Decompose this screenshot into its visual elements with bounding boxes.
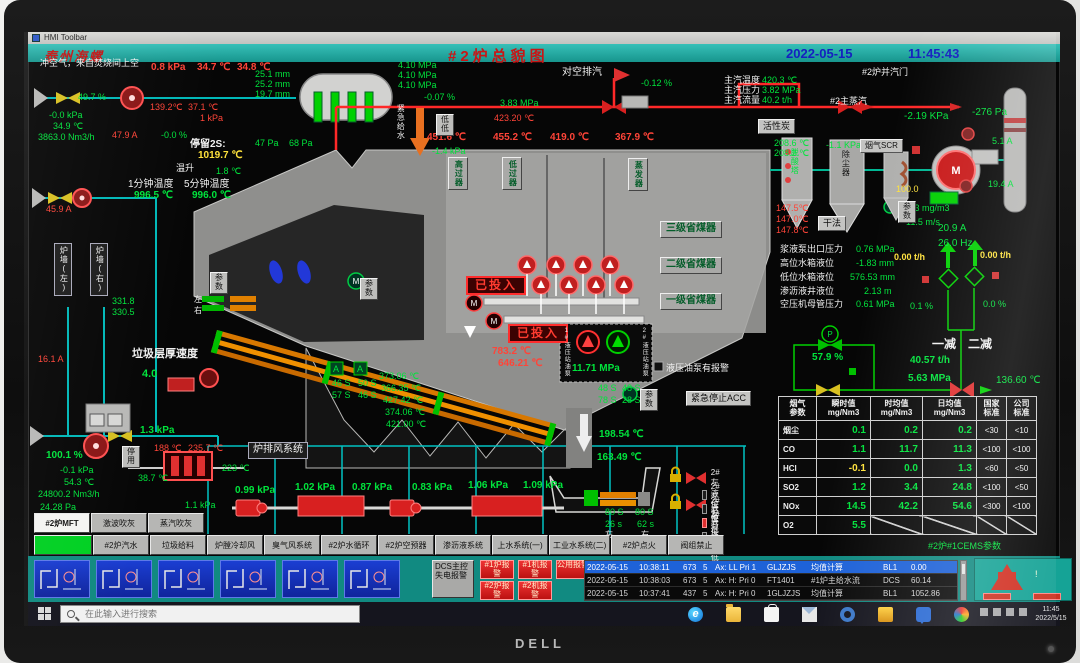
emissions-value: 1.2 xyxy=(817,478,871,497)
value-label: 136.60 ℃ xyxy=(996,376,1041,387)
value-label: 5.1 A xyxy=(992,137,1013,146)
menu-tab-#2炉空预器[interactable]: #2炉空预器 xyxy=(378,535,434,555)
value-label: 4.0 xyxy=(142,369,157,381)
drum-level-3: 19.7 mm xyxy=(255,90,290,99)
taskbar-clock[interactable]: 11:45 2022/5/15 xyxy=(1028,605,1074,623)
screen-thumbnail-4[interactable] xyxy=(220,560,276,598)
value-label: -0.12 % xyxy=(641,79,672,88)
value-label: 996.5 ℃ xyxy=(134,191,173,202)
value-label: 366.35 ℃ xyxy=(381,384,421,393)
monitor-bezel: HMI Toolbar 泰州海螺 #2炉总貌图 2022-05-15 11:45… xyxy=(4,0,1076,663)
param-button-4[interactable]: 参数 xyxy=(898,201,916,223)
mail-icon[interactable] xyxy=(802,607,817,622)
value-label: 24.28 Pa xyxy=(40,503,76,512)
value-label: 26 s xyxy=(605,520,622,529)
table-row: O25.5 xyxy=(779,516,1037,535)
menu-tab-#2炉水循环[interactable]: #2炉水循环 xyxy=(321,535,377,555)
value-label: 80 S xyxy=(635,508,654,517)
menu-tab-阀组禁止[interactable]: 阀组禁止 xyxy=(668,535,724,555)
windows-taskbar: e 11:45 2022/5/15 xyxy=(28,602,1060,626)
alarm-cell: 5 xyxy=(701,574,713,586)
hmi-header-band: 泰州海螺 #2炉总貌图 2022-05-15 11:45:43 xyxy=(28,44,1060,62)
value-label: 646.21 ℃ xyxy=(498,359,543,370)
value-label: 367.9 ℃ xyxy=(615,133,654,144)
settings-icon[interactable] xyxy=(840,607,855,622)
value-label: 147.5℃ xyxy=(776,204,809,213)
value-label: 54.3 ℃ xyxy=(64,478,94,487)
value-label: 423.20 ℃ xyxy=(494,114,534,123)
emissions-value: 11.3 xyxy=(923,440,977,459)
residence-label: 停留2S: xyxy=(190,140,226,151)
value-label: 右 xyxy=(194,307,202,315)
main-steam-flow: 40.2 t/h xyxy=(762,96,792,105)
screen-thumbnail-3[interactable] xyxy=(158,560,214,598)
value-label: 19.4 A xyxy=(988,180,1014,189)
emissions-value: 24.8 xyxy=(923,478,977,497)
alarm-cell: 10:37:41 xyxy=(637,587,681,599)
menu-tab-上水系统(一)[interactable]: 上水系统(一) xyxy=(492,535,548,555)
emissions-param: 烟尘 xyxy=(779,421,817,440)
value-label: 198.54 ℃ xyxy=(599,430,644,441)
hyd-pump-2-label: 2#液压站油泵 xyxy=(641,328,647,377)
emissions-value: 5.5 xyxy=(817,516,871,535)
emissions-value: <10 xyxy=(1007,421,1037,440)
emissions-value: 11.7 xyxy=(871,440,923,459)
value-label: 20.9 A xyxy=(938,224,966,235)
alarm-cell: 673 xyxy=(681,561,701,573)
hyd-pump-1-label: 1#液压站油泵 xyxy=(563,328,569,377)
value-label: 40.57 t/h xyxy=(910,356,950,367)
alarm-cell: 2022-05-15 xyxy=(585,574,637,586)
alarm-cell: FT1401 xyxy=(765,574,809,586)
chat-icon[interactable] xyxy=(916,607,931,622)
warning-triangle-icon xyxy=(991,564,1023,590)
value-label: 38.7 ℃ xyxy=(138,474,168,483)
value-label: 576.53 mm xyxy=(850,273,895,282)
value-label: 57 S xyxy=(332,391,351,400)
value-label: 一减 xyxy=(932,338,956,351)
emissions-value xyxy=(871,516,923,535)
emissions-value: <300 xyxy=(977,497,1007,516)
emissions-header: 日均值 mg/Nm3 xyxy=(923,397,977,421)
emissions-param: CO xyxy=(779,440,817,459)
baghouse-label: 除尘器 xyxy=(841,150,849,177)
emissions-value: 1.3 xyxy=(923,459,977,478)
value-label: 5分钟温度 xyxy=(184,180,230,191)
value-label: 26.0 Hz xyxy=(938,239,972,250)
screen-thumbnail-2[interactable] xyxy=(96,560,152,598)
value-label: 0.76 MPa xyxy=(856,245,895,254)
value-label: 47.9 A xyxy=(112,131,138,140)
value-label: 渗沥液井液位 xyxy=(780,287,834,296)
alarm-cell: 1GLJZJS xyxy=(765,587,809,599)
emissions-header: 时均值 mg/Nm3 xyxy=(871,397,923,421)
alarm-scrollbar[interactable] xyxy=(960,560,967,601)
vent-label: 对空排汽 xyxy=(562,68,602,79)
value-label: 50 S xyxy=(358,379,377,388)
value-label: 147.8℃ xyxy=(776,226,809,235)
value-label: 0.83 kPa xyxy=(412,483,452,494)
furnace-wall-right: 炉墙(右) xyxy=(90,243,108,296)
alarm-cell: 均值计算 xyxy=(809,561,881,573)
emissions-value: <50 xyxy=(1007,459,1037,478)
value-label: 4.10 MPa xyxy=(398,81,437,90)
emissions-header: 公司 标准 xyxy=(1007,397,1037,421)
photo-of-monitor: HMI Toolbar 泰州海螺 #2炉总貌图 2022-05-15 11:45… xyxy=(0,0,1080,663)
value-label: 1.3 kPa xyxy=(140,426,174,437)
emissions-header: 瞬时值 mg/Nm3 xyxy=(817,397,871,421)
purge-air-pressure: 0.8 kPa xyxy=(151,63,185,74)
value-label: 374.06 ℃ xyxy=(385,408,425,417)
value-label: 421.00 ℃ xyxy=(386,420,426,429)
alarm-cell: 10:38:03 xyxy=(637,574,681,586)
alarm-cell: Ax: H: Pri 0 xyxy=(713,574,765,586)
alarm-cell: 0.00 xyxy=(909,561,949,573)
value-label: #2炉并汽门 xyxy=(862,68,908,77)
value-label: 0.00 t/h xyxy=(894,253,925,262)
dcs-alarm-button[interactable]: DCS主控失电报警 xyxy=(432,560,474,598)
value-label: 主汽流量 xyxy=(724,96,760,105)
value-label: 427.42 ℃ xyxy=(383,396,423,405)
value-label: 左 xyxy=(194,296,202,304)
emissions-value xyxy=(923,516,977,535)
emissions-value: 0.1 xyxy=(817,421,871,440)
value-label: 空压机母管压力 xyxy=(780,300,843,309)
economizer-2: 二级省煤器 xyxy=(660,257,722,274)
value-label: -1.83 mm xyxy=(856,259,894,268)
value-label: 163.49 ℃ xyxy=(597,453,642,464)
emissions-value: 1.1 xyxy=(817,440,871,459)
value-label: -2.19 KPa xyxy=(904,112,948,123)
value-label: 80 S xyxy=(605,508,624,517)
value-label: 45.9 A xyxy=(46,205,72,214)
value-label: 57.9 % xyxy=(812,353,843,364)
menu-tab-激波吹灰[interactable]: 激波吹灰 xyxy=(91,513,147,533)
table-row: 烟尘0.10.20.2<30<10 xyxy=(779,421,1037,440)
value-label: 24800.2 Nm3/h xyxy=(38,490,100,499)
value-label: -0.0 % xyxy=(161,131,187,140)
emissions-value: <100 xyxy=(1007,497,1037,516)
value-label: 0.61 MPa xyxy=(856,300,895,309)
value-label: -0.1 kPa xyxy=(60,466,94,475)
menu-tab-炉膛冷却风[interactable]: 炉膛冷却风 xyxy=(207,535,263,555)
monitor-brand-logo: DELL xyxy=(4,636,1076,651)
alarm-button-#1炉报警[interactable]: #1炉报警 xyxy=(480,560,514,579)
value-label: 37.1 ℃ xyxy=(188,103,218,112)
value-label: 62 s xyxy=(637,520,654,529)
value-label: 100.1 % xyxy=(46,451,83,462)
emissions-param: HCl xyxy=(779,459,817,478)
search-input[interactable] xyxy=(83,608,343,620)
alarm-cell: 均值计算 xyxy=(809,587,881,599)
value-label: 47 Pa xyxy=(255,139,279,148)
emissions-param: O2 xyxy=(779,516,817,535)
emissions-value: <100 xyxy=(977,478,1007,497)
value-label: 低位水箱液位 xyxy=(780,273,834,282)
table-row: CO1.111.711.3<100<100 xyxy=(779,440,1037,459)
emissions-table: 烟气 参数瞬时值 mg/Nm3时均值 mg/Nm3日均值 mg/Nm3国家 标准… xyxy=(778,396,1037,535)
param-button-1[interactable]: 参数 xyxy=(210,272,228,294)
alarm-cell: Ax: H: Pri 0 xyxy=(713,587,765,599)
edge-icon[interactable]: e xyxy=(688,607,703,622)
cems-caption: #2炉#1CEMS参数 xyxy=(928,542,1001,551)
disabled-button[interactable]: 停用 xyxy=(122,446,140,468)
taskbar-search[interactable] xyxy=(60,605,360,623)
value-label: 浆液泵出口压力 xyxy=(780,245,843,254)
screen-thumbnail-6[interactable] xyxy=(344,560,400,598)
alarm-cell: 673 xyxy=(681,574,701,586)
value-label: 223 ℃ xyxy=(222,464,250,473)
menu-tab-渗沥液系统[interactable]: 渗沥液系统 xyxy=(435,535,491,555)
menu-tab-垃圾给料[interactable]: 垃圾给料 xyxy=(150,535,206,555)
value-label: 46 S xyxy=(332,379,351,388)
clock-time: 11:45 xyxy=(1028,605,1074,614)
emissions-value: <100 xyxy=(977,440,1007,459)
acc-stop-box: 紧急停止ACC xyxy=(686,391,751,406)
emissions-value: 0.2 xyxy=(871,421,923,440)
grate-fan-system-box: 炉排风系统 xyxy=(248,442,308,459)
economizer-3: 三级省煤器 xyxy=(660,221,722,238)
value-label: 0.1 % xyxy=(910,302,933,311)
value-label: 28 S xyxy=(622,396,641,405)
economizer-1: 一级省煤器 xyxy=(660,293,722,310)
emissions-header: 国家 标准 xyxy=(977,397,1007,421)
value-label: 1.1 kPa xyxy=(185,501,216,510)
value-label: 419.0 ℃ xyxy=(550,133,589,144)
menu-row-2: #2炉汽水垃圾给料炉膛冷却风臭气风系统#2炉水循环#2炉空预器渗沥液系统上水系统… xyxy=(34,535,724,555)
value-label: 100.0 xyxy=(896,185,919,194)
committed-2: 已投入 xyxy=(508,324,568,343)
alarm-button-#1机报警[interactable]: #1机报警 xyxy=(518,560,552,579)
value-label: 1.02 kPa xyxy=(295,483,335,494)
menu-tab-蒸汽吹灰[interactable]: 蒸汽吹灰 xyxy=(148,513,204,533)
value-label: 331.8 xyxy=(112,297,135,306)
emissions-param: NOx xyxy=(779,497,817,516)
value-label: -276 Pa xyxy=(972,108,1007,119)
alarm-button-#2炉报警[interactable]: #2炉报警 xyxy=(480,581,514,600)
alarm-cell: 10:38:11 xyxy=(637,561,681,573)
emissions-header: 烟气 参数 xyxy=(779,397,817,421)
value-label: 34.9 ℃ xyxy=(53,122,83,131)
value-label: 0.00 t/h xyxy=(980,251,1011,260)
alarm-row[interactable]: 2022-05-1510:38:116735Ax: LL Pri 1GLJZJS… xyxy=(585,561,957,574)
table-row: NOx14.542.254.6<300<100 xyxy=(779,497,1037,516)
header-time: 11:45:43 xyxy=(908,46,959,61)
alarm-cell: GLJZJS xyxy=(765,561,809,573)
alarm-cell: 2022-05-15 xyxy=(585,561,637,573)
deacid-tower-label: 脱酸塔 xyxy=(790,148,798,175)
table-row: HCl-0.10.01.3<60<50 xyxy=(779,459,1037,478)
alarm-row[interactable]: 2022-05-1510:37:414375Ax: H: Pri 01GLJZJ… xyxy=(585,587,957,600)
emissions-value: <60 xyxy=(977,459,1007,478)
value-label: 0.87 kPa xyxy=(352,483,392,494)
emergency-feedwater: 紧急给水 xyxy=(396,104,404,140)
menu-tab-#2炉MFT[interactable]: #2炉MFT xyxy=(34,513,90,533)
value-label: 1分钟温度 xyxy=(128,180,174,191)
menu-row-1: #2炉MFT激波吹灰蒸汽吹灰 xyxy=(34,513,204,533)
value-label: 0.0 % xyxy=(983,300,1006,309)
waste-layer-label: 垃圾层厚速度 xyxy=(132,349,198,361)
alarm-cell: 437 xyxy=(681,587,701,599)
store-icon[interactable] xyxy=(764,607,779,622)
value-label: 34.7 ℃ xyxy=(197,63,230,74)
alarm-indicator-1 xyxy=(983,593,1011,600)
clock-date: 2022/5/15 xyxy=(1028,614,1074,623)
menu-tab-臭气风系统[interactable]: 臭气风系统 xyxy=(264,535,320,555)
emissions-value: 42.2 xyxy=(871,497,923,516)
value-label: 16.1 A xyxy=(38,355,64,364)
value-label: 1.8 ℃ xyxy=(216,167,241,176)
value-label: #2主蒸汽 xyxy=(830,97,867,106)
value-label: 5.63 MPa xyxy=(908,374,951,385)
value-label: 147.0℃ xyxy=(776,215,809,224)
value-label: 11.71 MPa xyxy=(572,364,620,375)
param-button-3[interactable]: 参数 xyxy=(640,389,658,411)
value-label: 373.06 ℃ xyxy=(379,372,419,381)
value-label: 188 ℃ xyxy=(154,444,182,453)
value-label: 1.09 kPa xyxy=(523,481,563,492)
value-label: -0.0 kPa xyxy=(49,111,83,120)
value-label: 1.06 kPa xyxy=(468,481,508,492)
furnace-wall-left: 炉墙(左) xyxy=(54,243,72,296)
emissions-value: <30 xyxy=(977,421,1007,440)
emissions-value: <100 xyxy=(1007,440,1037,459)
value-label: 0.99 kPa xyxy=(235,486,275,497)
menu-tab-工业水系统(二)[interactable]: 工业水系统(二) xyxy=(549,535,610,555)
alarm-cell: 5 xyxy=(701,587,713,599)
emissions-value: 54.6 xyxy=(923,497,977,516)
lp-superheater: 低过器 xyxy=(502,157,522,190)
value-label: 330.5 xyxy=(112,308,135,317)
value-label: 235.7 ℃ xyxy=(188,444,223,453)
value-label: 49.7 % xyxy=(78,93,106,102)
value-label: 二减 xyxy=(968,338,992,351)
colors-icon[interactable] xyxy=(954,607,969,622)
dry-method-box: 干法 xyxy=(818,216,846,231)
hp-superheater: 高过器 xyxy=(448,157,468,190)
emissions-param: SO2 xyxy=(779,478,817,497)
alarm-strip: DCS主控失电报警 #1炉报警#1机报警公用报警#2炉报警#2机报警 2022-… xyxy=(28,556,1060,602)
value-label: 139.2℃ xyxy=(150,103,183,112)
files-icon[interactable] xyxy=(878,607,893,622)
hyd-alarm-label: 液压油泵有报警 xyxy=(666,364,729,373)
value-label: 78 S xyxy=(598,396,617,405)
value-label: 68 Pa xyxy=(289,139,313,148)
alarm-cell: #1炉主给水流 xyxy=(809,574,881,586)
emissions-value xyxy=(1007,516,1037,535)
evaporator: 蒸发器 xyxy=(628,158,648,191)
value-label: 1 kPa xyxy=(200,114,223,123)
emissions-value: -0.1 xyxy=(817,459,871,478)
alarm-row[interactable]: 2022-05-1510:38:036735Ax: H: Pri 0FT1401… xyxy=(585,574,957,587)
menu-tab-#2炉汽水[interactable]: #2炉汽水 xyxy=(93,535,149,555)
value-label: 783.2 ℃ xyxy=(492,347,531,358)
screen-thumbnail-1[interactable] xyxy=(34,560,90,598)
menu-tab-#2炉点火[interactable]: #2炉点火 xyxy=(611,535,667,555)
alarm-cell: 1052.86 xyxy=(909,587,949,599)
emissions-value: 0.0 xyxy=(871,459,923,478)
alarm-cell: DCS xyxy=(881,574,909,586)
table-row: SO21.23.424.8<100<50 xyxy=(779,478,1037,497)
committed-1: 已投入 xyxy=(466,276,526,295)
power-led[interactable] xyxy=(1048,646,1054,652)
window-title: HMI Toolbar xyxy=(44,33,87,42)
alarm-cell: BL1 xyxy=(881,587,909,599)
value-label: -0.07 % xyxy=(424,93,455,102)
alarm-status-panel: ! xyxy=(974,558,1072,601)
folder-icon[interactable] xyxy=(726,607,741,622)
alarm-exclaim: ! xyxy=(1035,569,1038,579)
value-label: 高位水箱液位 xyxy=(780,259,834,268)
emissions-value: 3.4 xyxy=(871,478,923,497)
purge-air-label: 冲空气，来自焚烧间上空 xyxy=(40,59,139,68)
alarm-cell: BL1 xyxy=(881,561,909,573)
value-label: 3.83 MPa xyxy=(500,99,539,108)
emissions-value: 0.2 xyxy=(923,421,977,440)
page-title: #2炉总貌图 xyxy=(448,45,549,66)
value-label: 455.2 ℃ xyxy=(493,133,532,144)
hmi-window-titlebar[interactable]: HMI Toolbar xyxy=(28,32,1060,44)
start-button[interactable] xyxy=(38,607,52,621)
emissions-value: <50 xyxy=(1007,478,1037,497)
lowlow-button[interactable]: 低低 xyxy=(436,114,454,136)
alarm-cell: 2022-05-15 xyxy=(585,587,637,599)
activated-carbon-box: 活性炭 xyxy=(758,119,795,134)
value-label: 3863.0 Nm3/h xyxy=(38,133,95,142)
value-label: 996.0 ℃ xyxy=(192,191,231,202)
emissions-value xyxy=(977,516,1007,535)
value-label: -1.4 kPa xyxy=(432,147,466,156)
emissions-value: 14.5 xyxy=(817,497,871,516)
alarm-cell: 60.14 xyxy=(909,574,949,586)
scr-box: 烟气SCR xyxy=(860,139,903,153)
app-icon xyxy=(32,34,40,42)
value-label: 48 S xyxy=(598,384,617,393)
screen-thumbnail-5[interactable] xyxy=(282,560,338,598)
system-tray[interactable] xyxy=(980,608,1027,616)
menu-tab-blank-0[interactable] xyxy=(34,535,92,555)
alarm-button-#2机报警[interactable]: #2机报警 xyxy=(518,581,552,600)
header-date: 2022-05-15 xyxy=(786,46,853,61)
value-label: 2.13 m xyxy=(864,287,892,296)
search-icon xyxy=(67,610,75,618)
alarm-list[interactable]: 2022-05-1510:38:116735Ax: LL Pri 1GLJZJS… xyxy=(584,560,958,601)
residence-temp: 1019.7 ℃ xyxy=(198,151,243,162)
alarm-indicator-2 xyxy=(1033,593,1061,600)
value-label: 48 S xyxy=(622,384,641,393)
param-button-2[interactable]: 参数 xyxy=(360,278,378,300)
value-label: 46 S xyxy=(358,391,377,400)
value-label: 温升 xyxy=(176,164,194,173)
